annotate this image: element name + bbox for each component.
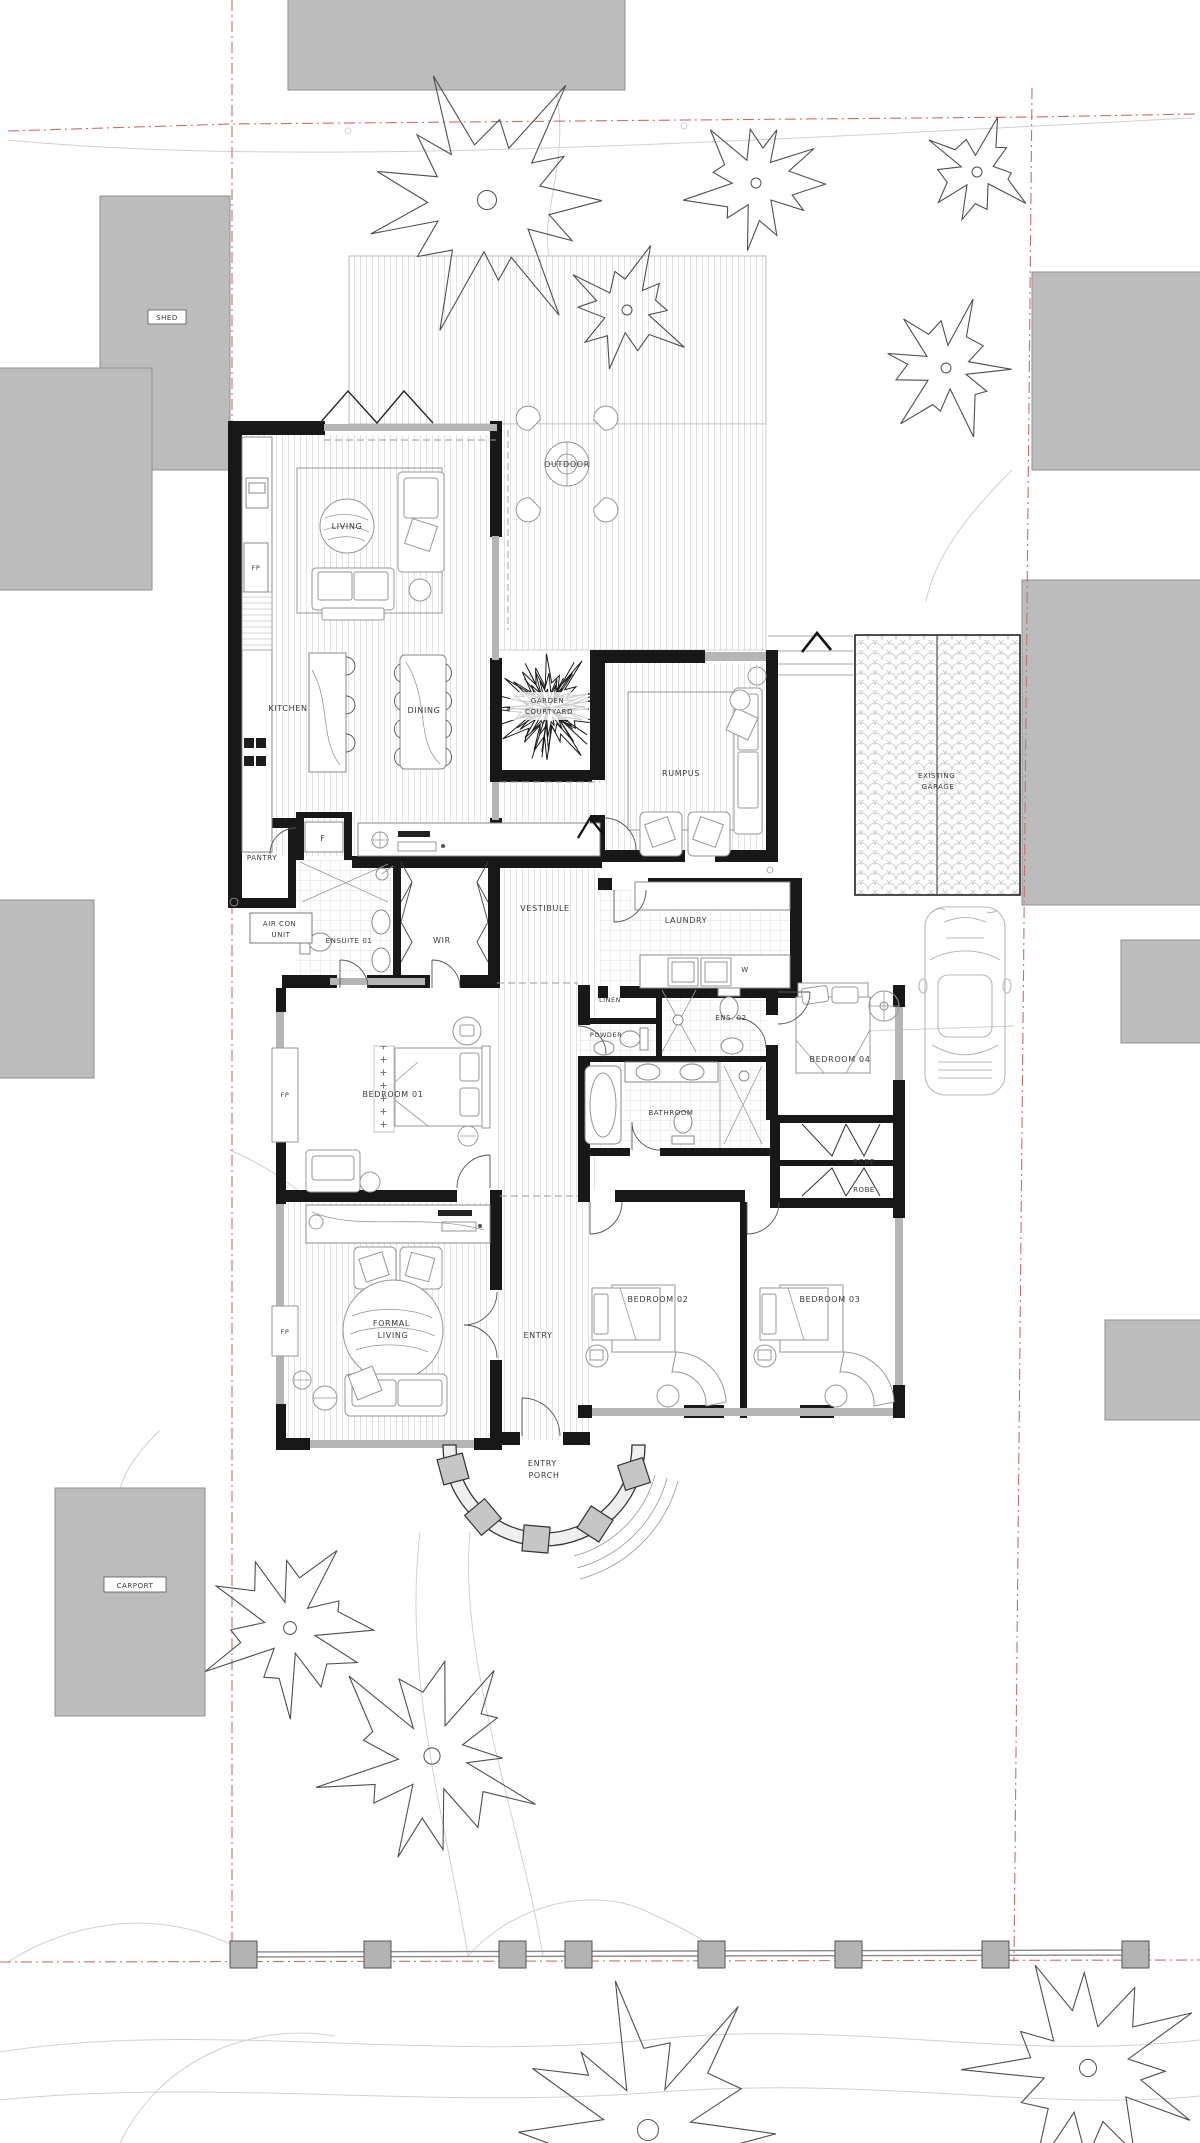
carport-label: CARPORT xyxy=(117,1582,154,1590)
bedroom01-furniture xyxy=(272,1017,490,1192)
bathtub xyxy=(585,1066,621,1144)
dining-label: DINING xyxy=(408,706,441,715)
neighbor-building-left-1 xyxy=(0,368,152,590)
bedroom02-label: BEDROOM 02 xyxy=(628,1295,689,1304)
tree-crown xyxy=(316,1661,535,1857)
fireplace-formal-label: FP xyxy=(281,1328,290,1336)
ens02-label: ENS. 02 xyxy=(715,1014,746,1022)
site-plan-drawing: SHED CARPORT EXISTING GARAGE OUTDOOR LIV… xyxy=(0,0,1200,2143)
front-fence xyxy=(230,1941,1150,1968)
wir-label: WIR xyxy=(433,936,451,945)
tree-trunk xyxy=(941,363,951,373)
boundary-east xyxy=(1014,88,1032,1962)
fence-posts xyxy=(230,1941,1149,1968)
bedroom01-label: BEDROOM 01 xyxy=(363,1090,424,1099)
pantry-label: PANTRY xyxy=(247,854,277,862)
boundary-front xyxy=(0,1960,1200,1962)
neighbor-building-carport xyxy=(55,1488,205,1716)
entry-hall-floor xyxy=(497,1190,590,1440)
fireplace-bed01-label: FP xyxy=(281,1091,290,1099)
robe1-label: ROBE xyxy=(853,1158,875,1166)
tree-crown xyxy=(518,1981,776,2143)
bedroom04-label: BEDROOM 04 xyxy=(810,1055,871,1064)
tree-trunk xyxy=(284,1622,297,1635)
outdoor-deck xyxy=(497,424,766,650)
tree-trunk xyxy=(1080,2060,1097,2077)
bedroom03-label: BEDROOM 03 xyxy=(800,1295,861,1304)
neighbor-building-right-1 xyxy=(1032,272,1200,470)
car-illustration xyxy=(919,907,1011,1095)
laundry-label: LAUNDRY xyxy=(665,916,708,925)
entry-porch-label: ENTRY PORCH xyxy=(528,1459,560,1480)
tree-crown xyxy=(929,117,1026,219)
tree-crown xyxy=(205,1551,374,1720)
living-label: LIVING xyxy=(332,522,363,531)
outdoor-label: OUTDOOR xyxy=(544,460,590,469)
linen-label: LINEN xyxy=(599,996,621,1004)
tree-crown xyxy=(888,299,1012,437)
robe2-label: ROBE xyxy=(853,1186,875,1194)
neighbor-building-top xyxy=(288,0,625,90)
neighbor-building-right-2 xyxy=(1022,580,1200,905)
formal-living-rug xyxy=(343,1280,443,1380)
fireplace-kitchen-label: FP xyxy=(252,564,261,572)
washer-label: W xyxy=(741,966,748,974)
tree-trunk xyxy=(972,167,982,177)
shed-label: SHED xyxy=(156,314,178,322)
neighbor-building-right-3 xyxy=(1121,940,1200,1043)
kitchen-back-bench xyxy=(358,823,600,856)
tree-crown xyxy=(683,129,825,250)
powder-label: POWDER xyxy=(590,1031,622,1039)
existing-garage xyxy=(768,633,1020,895)
boundary-top xyxy=(8,114,1196,131)
tree-trunk xyxy=(478,191,497,210)
ensuite01-label: ENSUITE 01 xyxy=(326,937,373,945)
neighbor-building-right-4 xyxy=(1105,1320,1200,1420)
kitchen-label: KITCHEN xyxy=(268,704,307,713)
tree-trunk xyxy=(638,2120,659,2141)
rumpus-label: RUMPUS xyxy=(662,769,700,778)
fridge-label: F xyxy=(320,834,325,843)
vestibule-label: VESTIBULE xyxy=(520,904,569,913)
island-bench xyxy=(309,653,346,772)
tree-trunk xyxy=(751,178,761,188)
tree-trunk xyxy=(424,1748,440,1764)
bathroom-label: BATHROOM xyxy=(649,1109,694,1117)
living-kitchen-floor xyxy=(242,435,490,856)
neighbor-building-left-2 xyxy=(0,900,94,1078)
entry-label: ENTRY xyxy=(523,1331,552,1340)
tree-crown xyxy=(961,1965,1192,2143)
